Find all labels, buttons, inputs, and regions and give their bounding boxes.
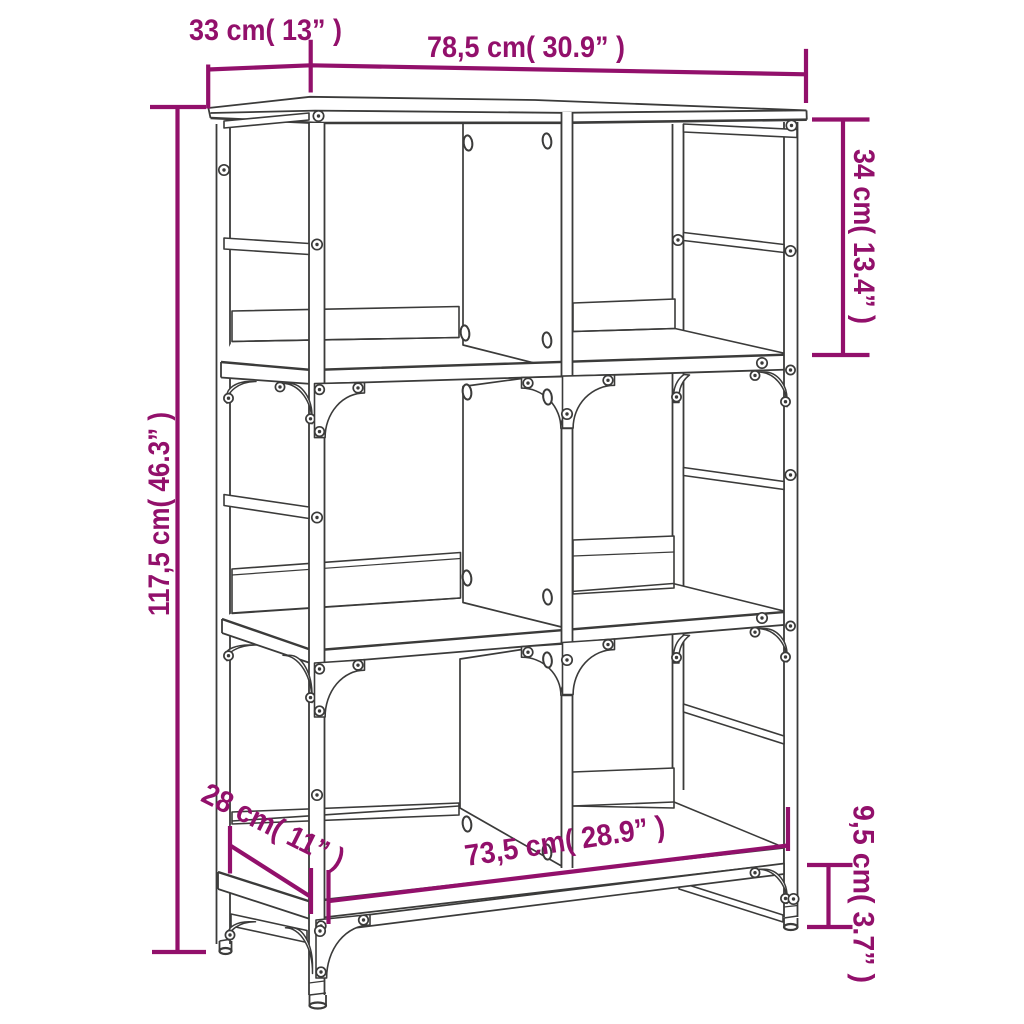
svg-text:117,5 cm( 46.3” ): 117,5 cm( 46.3” )	[143, 412, 176, 616]
svg-text:34 cm( 13.4” ): 34 cm( 13.4” )	[847, 149, 880, 324]
svg-text:78,5 cm( 30.9” ): 78,5 cm( 30.9” )	[427, 31, 625, 64]
svg-text:9,5 cm( 3.7” ): 9,5 cm( 3.7” )	[847, 805, 880, 983]
svg-text:33 cm( 13” ): 33 cm( 13” )	[189, 14, 342, 47]
